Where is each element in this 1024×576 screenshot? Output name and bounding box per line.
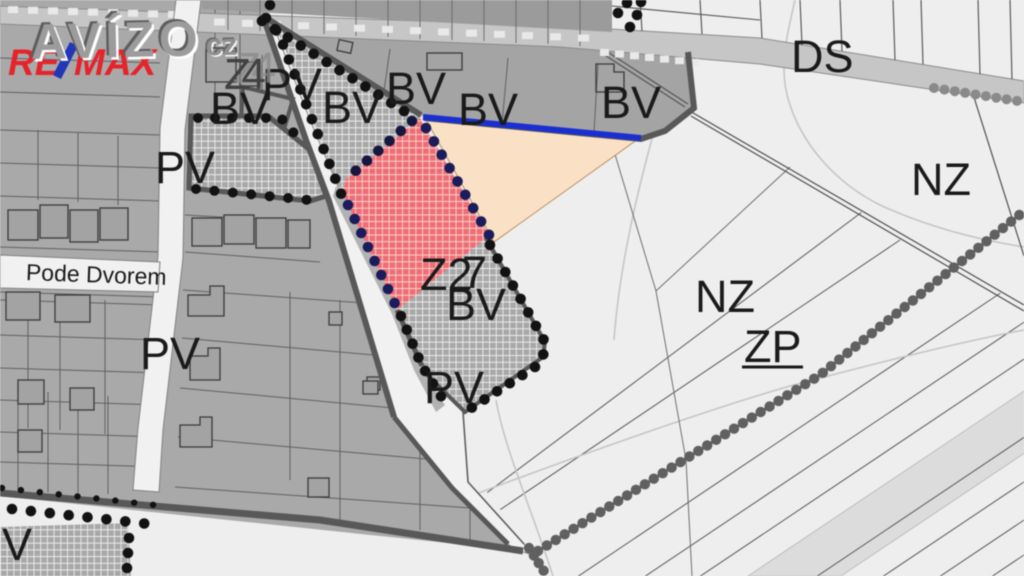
svg-text:BV: BV [458, 84, 518, 135]
svg-text:PV: PV [140, 328, 200, 379]
svg-text:Pode Dvorem: Pode Dvorem [26, 259, 167, 290]
svg-text:PV: PV [424, 362, 484, 413]
svg-text:cz: cz [205, 29, 237, 63]
svg-text:ZP: ZP [744, 321, 802, 372]
svg-text:BV: BV [601, 77, 661, 128]
svg-text:NZ: NZ [695, 271, 755, 322]
svg-text:NZ: NZ [911, 154, 971, 205]
svg-text:PV: PV [155, 142, 215, 193]
svg-text:BV: BV [322, 82, 382, 133]
svg-text:DS: DS [791, 31, 854, 82]
svg-text:PV: PV [0, 519, 32, 570]
svg-text:AVÍZO: AVÍZO [30, 10, 203, 70]
svg-text:BV: BV [386, 63, 446, 114]
svg-text:7: 7 [462, 247, 487, 298]
